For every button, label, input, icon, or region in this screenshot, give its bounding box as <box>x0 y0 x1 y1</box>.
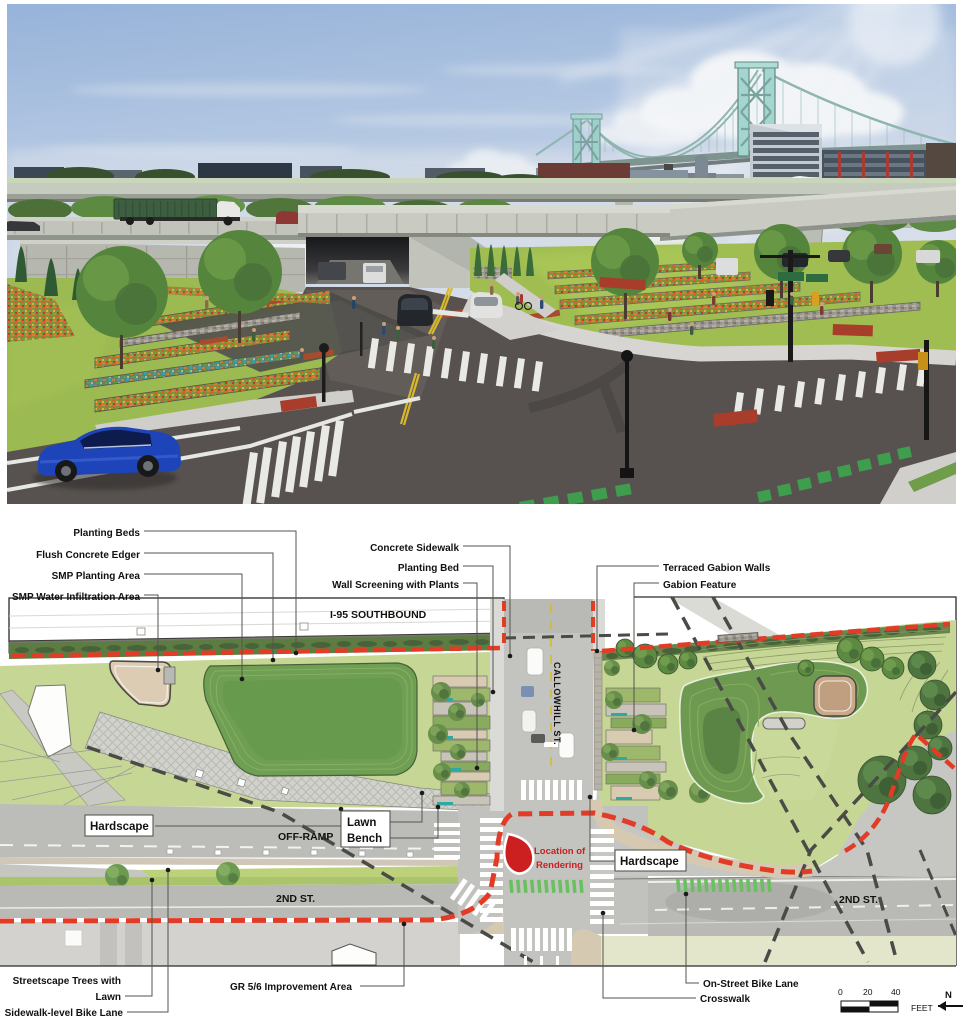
svg-text:Hardscape: Hardscape <box>620 856 679 868</box>
svg-text:Planting Beds: Planting Beds <box>73 528 140 539</box>
svg-text:40: 40 <box>891 987 901 997</box>
svg-text:GR 5/6 Improvement Area: GR 5/6 Improvement Area <box>230 982 352 993</box>
svg-text:CALLOWHILL ST.: CALLOWHILL ST. <box>552 662 562 745</box>
svg-text:Terraced Gabion Walls: Terraced Gabion Walls <box>663 563 771 574</box>
svg-text:Streetscape Trees with: Streetscape Trees with <box>13 976 121 987</box>
svg-text:2ND ST.: 2ND ST. <box>839 894 878 906</box>
svg-text:N: N <box>945 990 952 1001</box>
svg-text:SMP Planting Area: SMP Planting Area <box>52 571 141 582</box>
svg-text:Hardscape: Hardscape <box>90 821 149 833</box>
svg-text:FEET: FEET <box>911 1003 933 1013</box>
svg-text:Sidewalk-level Bike Lane: Sidewalk-level Bike Lane <box>5 1008 124 1019</box>
svg-text:Lawn: Lawn <box>95 992 121 1003</box>
svg-text:SMP Water Infiltration Area: SMP Water Infiltration Area <box>12 592 140 603</box>
svg-text:Bench: Bench <box>347 833 382 845</box>
svg-text:2ND ST.: 2ND ST. <box>276 893 315 905</box>
svg-text:Concrete Sidewalk: Concrete Sidewalk <box>370 543 459 554</box>
svg-text:Gabion Feature: Gabion Feature <box>663 580 737 591</box>
svg-text:Wall Screening with Plants: Wall Screening with Plants <box>332 580 459 591</box>
svg-text:On-Street Bike Lane: On-Street Bike Lane <box>703 979 799 990</box>
svg-text:20: 20 <box>863 987 873 997</box>
svg-text:I-95 SOUTHBOUND: I-95 SOUTHBOUND <box>330 609 427 621</box>
svg-text:Flush Concrete Edger: Flush Concrete Edger <box>36 550 140 561</box>
svg-text:Lawn: Lawn <box>347 817 376 829</box>
svg-text:Rendering: Rendering <box>536 860 583 871</box>
svg-text:OFF-RAMP: OFF-RAMP <box>278 831 333 843</box>
svg-text:Crosswalk: Crosswalk <box>700 994 750 1005</box>
svg-text:Planting Bed: Planting Bed <box>398 563 459 574</box>
svg-text:0: 0 <box>838 987 843 997</box>
svg-text:Location of: Location of <box>534 846 586 857</box>
